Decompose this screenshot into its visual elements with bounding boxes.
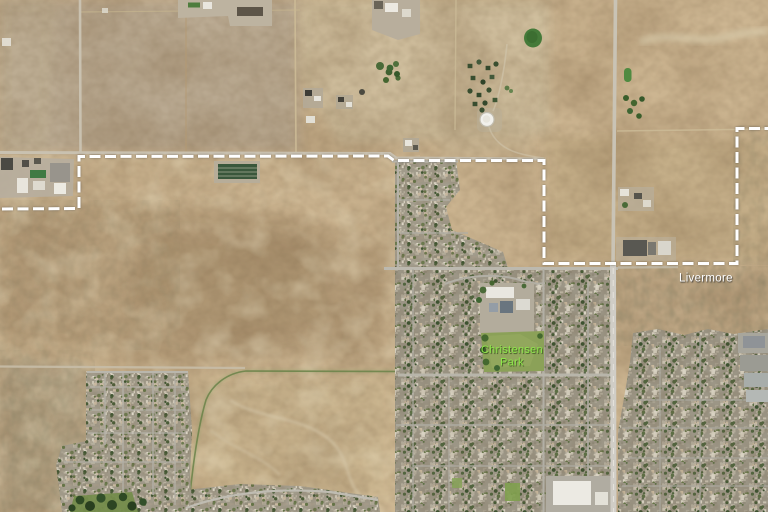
- svg-text:Christensen: Christensen: [481, 344, 543, 356]
- svg-text:Livermore: Livermore: [679, 273, 733, 285]
- svg-text:Park: Park: [500, 357, 524, 369]
